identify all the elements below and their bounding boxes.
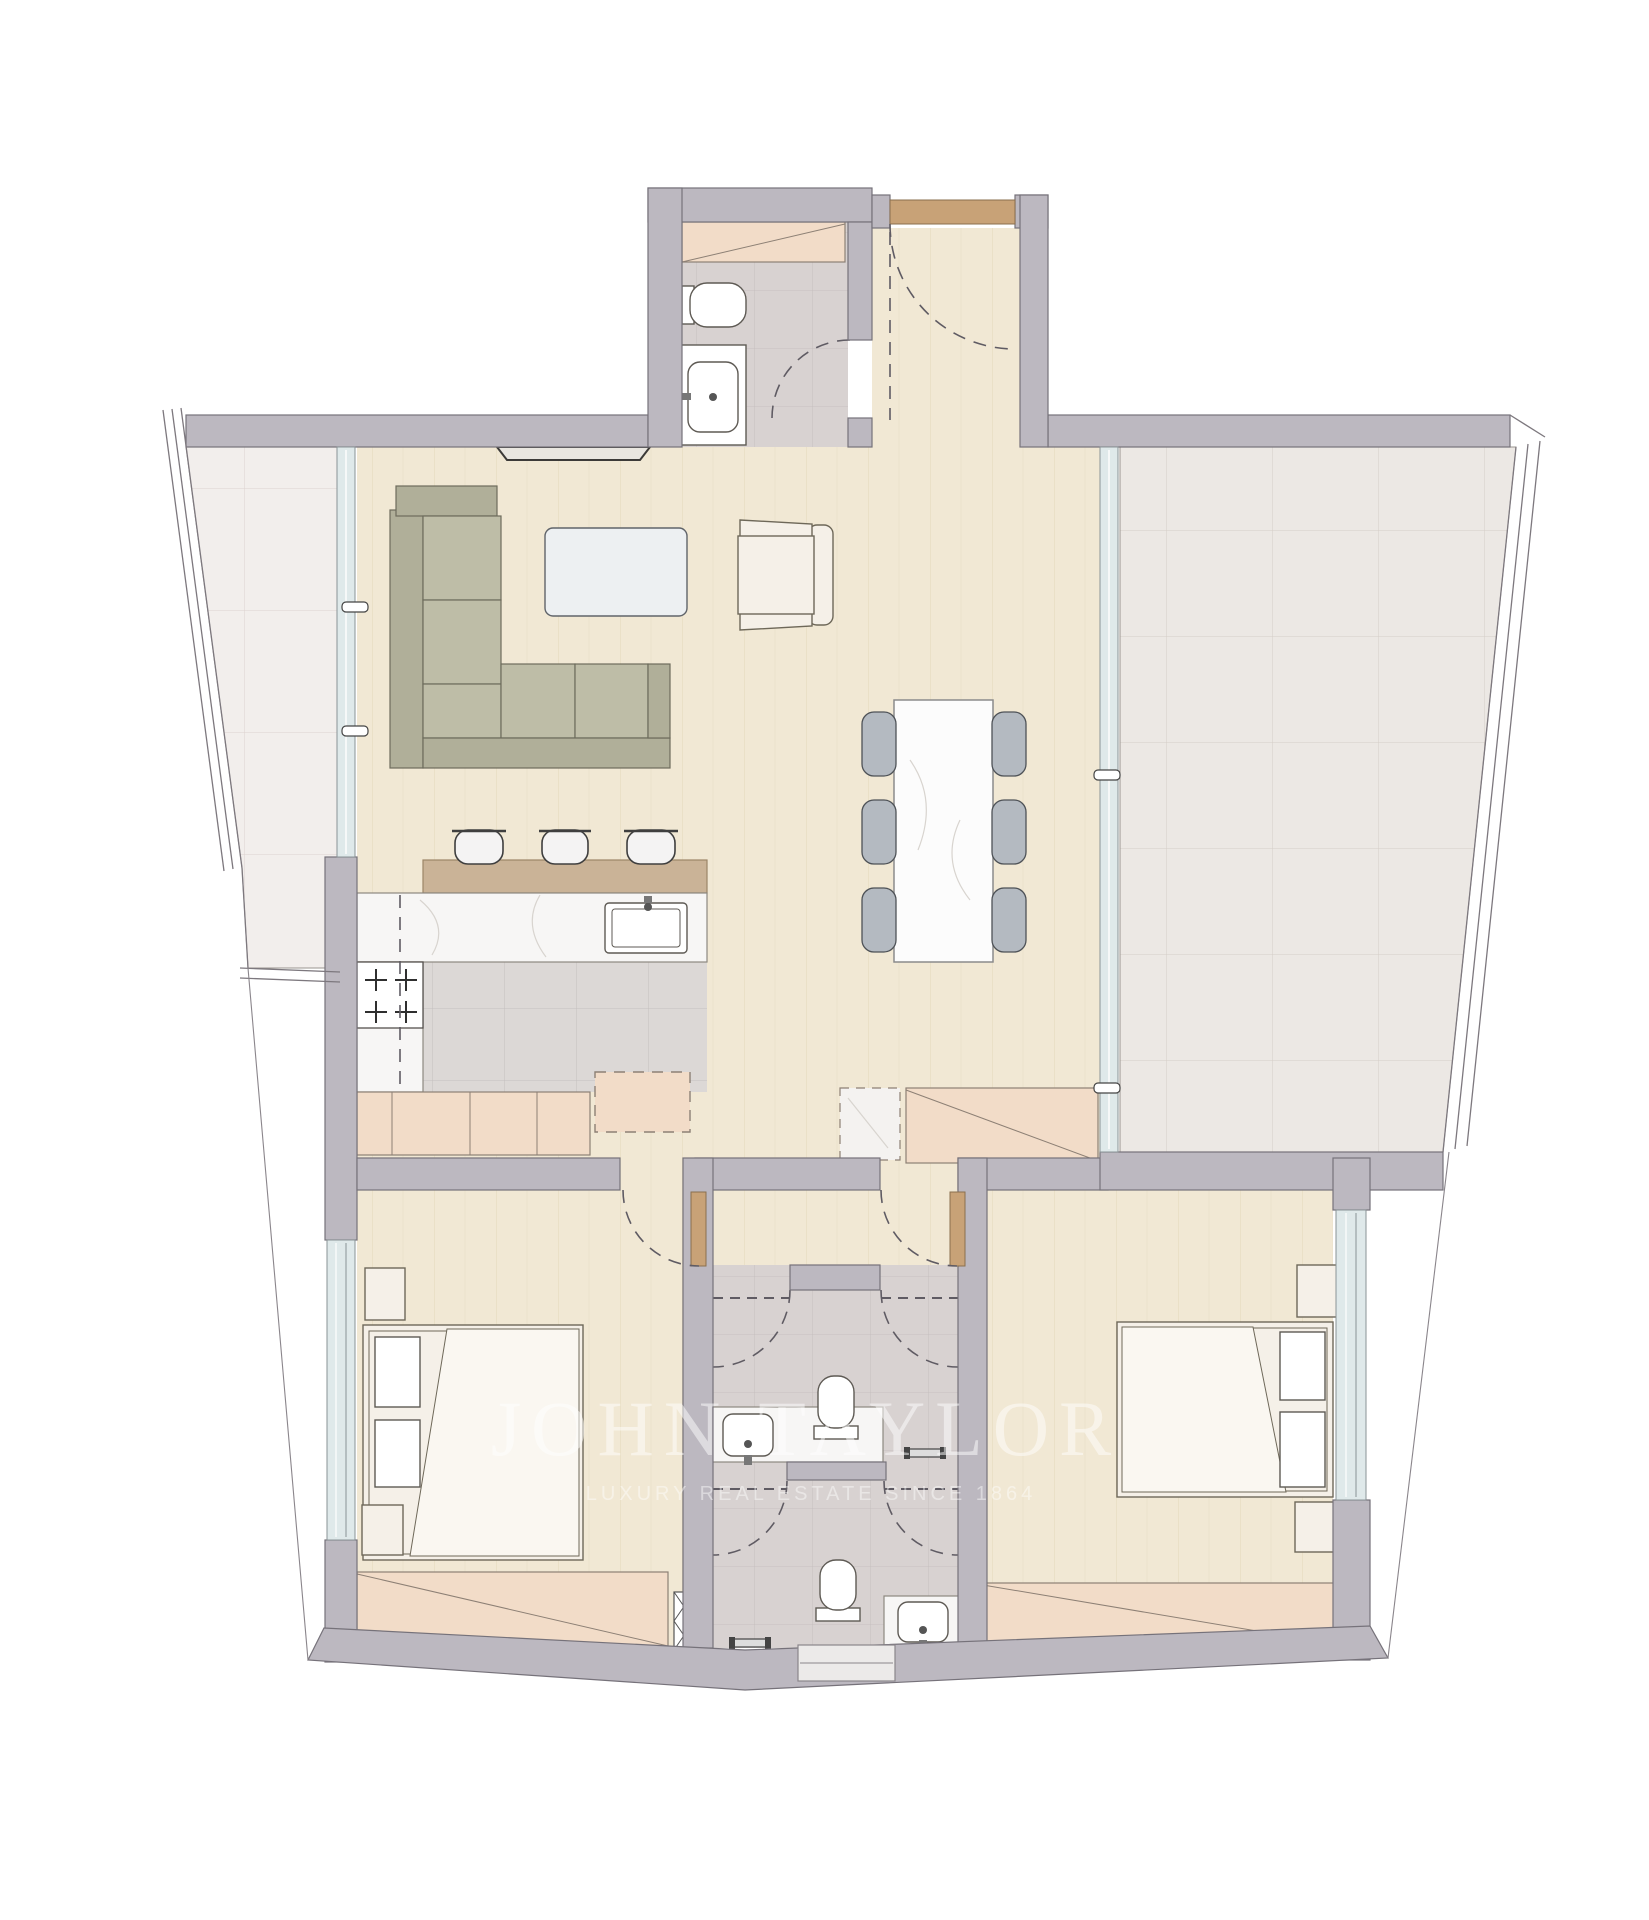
wall-left-mid [325, 857, 357, 1240]
wall-bath-right-upper [848, 222, 872, 340]
guest-toilet [682, 283, 746, 327]
hall-closets [840, 1088, 1098, 1163]
kitchen-sink [605, 896, 687, 953]
floor-plan: JOHN TAYLOR LUXURY REAL ESTATE SINCE 186… [0, 0, 1649, 1920]
bar-stool [539, 830, 591, 864]
wall-terrace-right-bottom [1100, 1152, 1443, 1190]
bath2-shower-mixer [729, 1637, 771, 1649]
dining-table [894, 700, 993, 962]
watermark-brand: JOHN TAYLOR [491, 1385, 1121, 1472]
armchair [738, 520, 833, 630]
terrace-right-floor [1120, 447, 1516, 1152]
nightstand [1295, 1502, 1337, 1552]
nightstand [1297, 1265, 1337, 1317]
window-bath2 [798, 1645, 895, 1681]
bar-stool [624, 830, 678, 864]
wall-top-right [1048, 415, 1510, 447]
nightstand [365, 1268, 405, 1320]
vestibule-floor [713, 1190, 958, 1265]
entry-floor [872, 228, 1020, 447]
bed-right [1117, 1322, 1333, 1497]
wall-hall-seg2 [695, 1158, 880, 1190]
bar-stool [452, 830, 506, 864]
cooktop [357, 962, 423, 1028]
floor-plan-page: JOHN TAYLOR LUXURY REAL ESTATE SINCE 186… [0, 0, 1649, 1920]
wall-entry-right [1020, 195, 1048, 447]
bath2-sink-counter [884, 1596, 968, 1649]
tv-unit [497, 447, 650, 460]
watermark-tagline: LUXURY REAL ESTATE SINCE 1864 [586, 1483, 1037, 1505]
wall-bump-left [648, 188, 682, 447]
wall-top-left [186, 415, 648, 447]
window-bedroom-right [1336, 1210, 1366, 1500]
window-bedroom-left [327, 1240, 355, 1540]
watermark: JOHN TAYLOR LUXURY REAL ESTATE SINCE 186… [491, 1385, 1121, 1505]
terrace-left-floor [186, 447, 337, 968]
wall-hall-seg1 [357, 1158, 620, 1190]
closet-right [906, 1088, 1098, 1163]
nightstand [362, 1505, 403, 1555]
technical-shaft [840, 1088, 900, 1160]
coffee-table [545, 528, 687, 616]
hall-cupboard-dashed [595, 1072, 690, 1132]
wall-bath1-top-stub [790, 1265, 880, 1290]
bath2-toilet [816, 1560, 860, 1621]
kitchen-bar-counter [423, 860, 707, 893]
wall-bedroomR-right-upper [1333, 1158, 1370, 1210]
kitchen-base-cabinets [357, 1092, 590, 1155]
wall-entry-top-left [872, 195, 890, 228]
wall-bath-right-lower [848, 418, 872, 447]
guest-bath-closet [682, 222, 845, 262]
guest-sink [680, 345, 746, 445]
